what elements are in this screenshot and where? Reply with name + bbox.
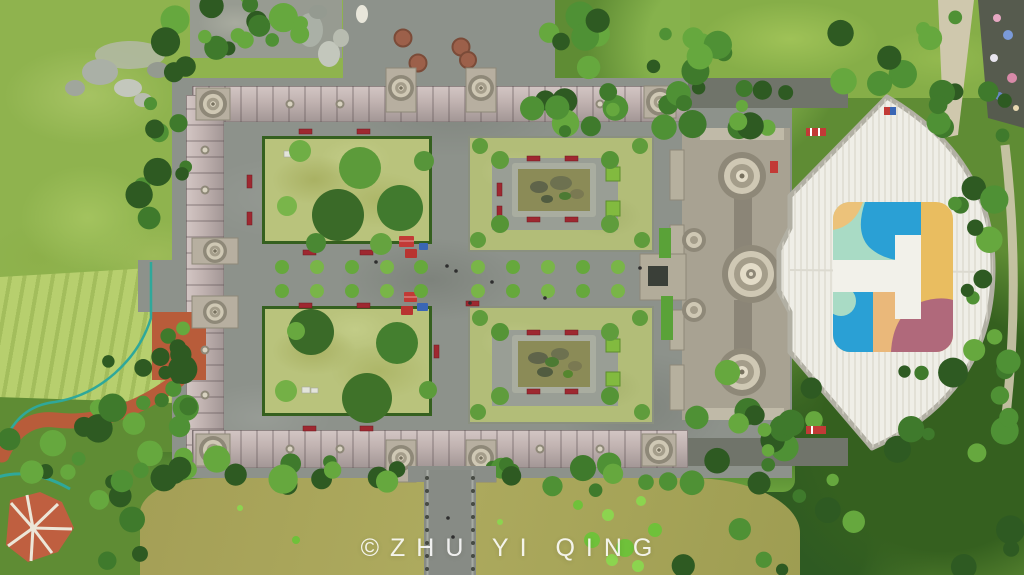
tree-canopy [176, 321, 190, 335]
tree-canopy [134, 359, 152, 377]
tree-canopy [728, 413, 748, 433]
wall-spire [203, 348, 208, 353]
garden-tree [491, 151, 509, 169]
tree-canopy [678, 110, 706, 138]
wall-spire [203, 188, 208, 193]
garden-tree [414, 151, 434, 171]
wall-spire [338, 102, 343, 107]
garden-tree [634, 404, 650, 420]
small-tree [471, 284, 485, 298]
garden-tree [312, 189, 364, 241]
bench [360, 426, 373, 431]
lotus-patch [636, 496, 646, 506]
tree-canopy [659, 28, 672, 41]
bench [527, 389, 540, 394]
small-tree [611, 260, 625, 274]
small-tree [275, 260, 289, 274]
tree-canopy [40, 430, 66, 456]
bench [357, 303, 370, 308]
wall-spire [288, 447, 293, 452]
tree-canopy [324, 461, 341, 478]
tree-canopy [963, 339, 985, 361]
bridge-post [425, 528, 429, 532]
tree-canopy [520, 96, 544, 120]
bridge-post [471, 489, 475, 493]
tree-canopy [659, 472, 677, 490]
tree-canopy [150, 465, 177, 492]
tree-canopy [559, 125, 571, 137]
bench [565, 217, 578, 222]
planter-boxes [606, 167, 620, 386]
small-tree [576, 260, 590, 274]
tower-finial [399, 86, 403, 90]
tree-canopy [830, 68, 857, 95]
tree-canopy [545, 95, 569, 119]
wall-spire [538, 447, 543, 452]
bench [466, 301, 479, 306]
bench [565, 389, 578, 394]
tree-canopy [961, 284, 974, 297]
rock-pool-northeast [512, 163, 596, 217]
small-tree [471, 260, 485, 274]
vendor-tents [399, 236, 428, 315]
small-tree [611, 284, 625, 298]
tree-canopy [877, 46, 901, 70]
garden-tree [419, 381, 437, 399]
tree-canopy [242, 0, 258, 13]
aerial-photo: ©ZHU YI QING [0, 0, 1024, 575]
wall-spire [203, 393, 208, 398]
bridge-post [471, 528, 475, 532]
wall-spire [598, 447, 603, 452]
tree-canopy [967, 219, 983, 235]
tree-canopy [996, 129, 1010, 143]
tree-canopy [603, 464, 623, 484]
wall-spire [598, 102, 603, 107]
tree-canopy [638, 474, 654, 490]
tree-canopy [973, 270, 992, 289]
garden-tree [376, 322, 418, 364]
small-tree [310, 284, 324, 298]
person-dot [490, 280, 494, 284]
garden-tree [470, 232, 486, 248]
small-tree [310, 260, 324, 274]
small-tree [506, 284, 520, 298]
wall-spire [203, 148, 208, 153]
small-tree [541, 284, 555, 298]
tree-canopy [704, 448, 730, 474]
bench [527, 217, 540, 222]
lotus-patch [602, 509, 614, 521]
tree-canopy [577, 56, 600, 79]
garden-tree [601, 323, 619, 341]
garden-tree [472, 138, 488, 154]
tree-canopy [776, 564, 788, 575]
garden-tree [287, 322, 305, 340]
tree-canopy [687, 43, 713, 69]
tree-canopy [581, 116, 601, 136]
person-dot [638, 266, 642, 270]
bridge-post [471, 515, 475, 519]
tree-canopy [175, 56, 195, 76]
tower-finial [213, 249, 217, 253]
tree-canopy [542, 476, 562, 496]
tree-canopy [502, 466, 522, 486]
tree-canopy [948, 197, 962, 211]
garden-tree [370, 233, 392, 255]
tree-canopy [231, 28, 246, 43]
photographer-watermark: ©ZHU YI QING [0, 534, 1024, 563]
person-dot [468, 301, 472, 305]
bridge-post [471, 567, 475, 571]
garden-tree [275, 380, 297, 402]
wall-spire [288, 102, 293, 107]
tower-finial [479, 86, 483, 90]
tree-canopy [748, 472, 771, 495]
tree-canopy [948, 11, 962, 25]
tree-canopy [606, 103, 620, 117]
tree-canopy [898, 416, 924, 442]
tree-canopy [827, 20, 853, 46]
tree-canopy [685, 406, 709, 430]
tree-canopy [715, 360, 740, 385]
garden-tree [491, 323, 509, 341]
tree-canopy [268, 464, 297, 493]
tree-canopy [647, 60, 660, 73]
tree-canopy [125, 181, 152, 208]
tree-canopy [144, 97, 157, 110]
bridge-post [425, 502, 429, 506]
tree-canopy [801, 377, 822, 398]
tree-canopy [758, 423, 772, 437]
tree-canopy [179, 397, 197, 415]
small-tree [541, 260, 555, 274]
tree-canopy [293, 16, 308, 31]
lotus-patch [497, 519, 503, 525]
tree-canopy [761, 458, 775, 472]
garden-tree [601, 151, 619, 169]
round-planters [395, 30, 477, 72]
bridge-post [471, 476, 475, 480]
tree-canopy [111, 470, 133, 492]
person-dot [374, 260, 378, 264]
garden-tree [289, 140, 311, 162]
garden-tree [339, 147, 381, 189]
tree-canopy [102, 355, 114, 367]
garden-tree [632, 310, 648, 326]
tree-canopy [753, 81, 772, 100]
bridge-post [425, 476, 429, 480]
small-tree [380, 284, 394, 298]
tree-canopy [265, 33, 279, 47]
person-dot [454, 269, 458, 273]
tree-canopy [792, 489, 806, 503]
tree-canopy [867, 71, 892, 96]
tower-finial [657, 448, 661, 452]
tree-canopy [151, 27, 180, 56]
bench [247, 212, 252, 225]
tree-canopy [570, 455, 596, 481]
gate-towers [192, 68, 676, 482]
tree-canopy [980, 185, 1008, 213]
tree-canopy [89, 490, 109, 510]
small-tree [576, 284, 590, 298]
tree-canopy [729, 112, 747, 130]
bench [527, 156, 540, 161]
small-tree [275, 284, 289, 298]
tree-canopy [175, 167, 189, 181]
person-dot [445, 264, 449, 268]
tower-finial [479, 456, 483, 460]
white-statue [356, 5, 368, 23]
bench [360, 250, 373, 255]
roof-logo [826, 202, 953, 352]
tree-canopy [123, 412, 146, 435]
path-tree-rows [275, 260, 625, 298]
garden-tree [601, 387, 619, 405]
bridge-post [425, 567, 429, 571]
small-tree [345, 260, 359, 274]
tree-canopy [98, 394, 126, 422]
tower-finial [211, 102, 215, 106]
lotus-patch [237, 505, 243, 511]
tree-canopy [914, 366, 928, 380]
tree-canopy [999, 408, 1018, 427]
tree-canopy [151, 348, 169, 366]
tree-canopy [651, 114, 676, 139]
tree-canopy [20, 460, 43, 483]
small-tree [506, 260, 520, 274]
tree-canopy [137, 441, 163, 467]
small-tree [345, 284, 359, 298]
tree-canopy [991, 386, 1009, 404]
small-tree [414, 260, 428, 274]
tree-canopy [155, 393, 169, 407]
tree-canopy [680, 470, 705, 495]
tree-canopy [762, 444, 775, 457]
tree-canopy [927, 111, 951, 135]
tree-canopy [203, 446, 230, 473]
tree-canopy [987, 329, 1002, 344]
bench [565, 156, 578, 161]
small-tree [414, 284, 428, 298]
tree-canopy [827, 474, 839, 486]
tree-canopy [676, 95, 692, 111]
tree-canopy [119, 507, 145, 533]
garden-tree [491, 387, 509, 405]
garden-tree [472, 310, 488, 326]
garden-tree [342, 373, 392, 423]
tree-canopy [586, 9, 610, 33]
rock-pool-southeast [512, 335, 596, 393]
tree-canopy [145, 120, 164, 139]
tree-canopy [967, 443, 986, 462]
tree-canopy [136, 396, 150, 410]
wall-pinnacles [201, 100, 605, 454]
garden-tree [634, 232, 650, 248]
tiered-dome [718, 152, 766, 200]
bridge-post [471, 502, 475, 506]
small-tree [380, 260, 394, 274]
garden-tree [277, 196, 297, 216]
lotus-patch [573, 500, 583, 510]
tree-canopy [778, 85, 793, 100]
bench [303, 426, 316, 431]
tree-canopy [169, 416, 190, 437]
garden-tree [377, 185, 423, 231]
bench [497, 183, 502, 196]
bench [357, 129, 370, 134]
wall-spire [338, 447, 343, 452]
tree-canopy [736, 100, 748, 112]
tree-canopy [929, 95, 948, 114]
garden-tree [632, 138, 648, 154]
tree-canopy [138, 207, 161, 230]
bench [299, 129, 312, 134]
tree-canopy [842, 510, 864, 532]
garden-tree [470, 404, 486, 420]
tree-canopy [376, 470, 398, 492]
garden-tree [306, 233, 326, 253]
tree-canopy [170, 344, 191, 365]
person-dot [543, 296, 547, 300]
tree-canopy [198, 30, 211, 43]
tower-finial [213, 310, 217, 314]
tree-canopy [133, 462, 149, 478]
tree-canopy [736, 80, 753, 97]
tree-canopy [916, 22, 930, 36]
tree-canopy [938, 358, 968, 388]
bench [434, 345, 439, 358]
garden-tree [491, 215, 509, 233]
tree-canopy [998, 94, 1012, 108]
tree-canopy [248, 15, 270, 37]
tree-canopy [898, 365, 910, 377]
tree-canopy [199, 0, 223, 18]
bridge-post [425, 515, 429, 519]
tree-canopy [60, 464, 75, 479]
tree-canopy [143, 158, 171, 186]
tree-canopy [589, 483, 603, 497]
tree-canopy [778, 410, 805, 437]
bench [247, 175, 252, 188]
bridge-post [425, 489, 429, 493]
tree-canopy [978, 81, 998, 101]
bench [565, 330, 578, 335]
bench [299, 303, 312, 308]
tree-canopy [169, 114, 187, 132]
tree-canopy [996, 350, 1020, 374]
bench [527, 330, 540, 335]
tree-canopy [552, 33, 570, 51]
tree-canopy [815, 497, 841, 523]
scene-overlay [0, 0, 1024, 575]
garden-tree [601, 215, 619, 233]
tree-canopy [599, 83, 617, 101]
person-dot [446, 516, 450, 520]
tiered-dome-main [722, 245, 780, 303]
tower-finial [399, 456, 403, 460]
tree-canopy [72, 452, 86, 466]
